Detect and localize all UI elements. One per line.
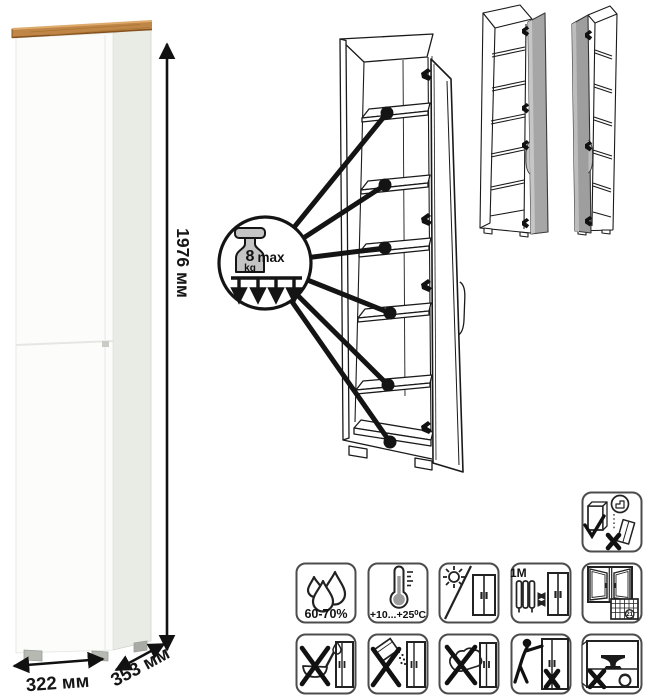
- no-dragging-icon: [510, 633, 572, 695]
- height-label: 1976 мм: [173, 228, 193, 298]
- no-liquid-cleaners-icon: [295, 633, 357, 695]
- calendar-icon: 21: [611, 599, 638, 619]
- humidity-icon: 60-70%: [295, 562, 357, 624]
- no-abrasive-powders-icon: [367, 633, 429, 695]
- anchor-to-wall-icon: [581, 491, 643, 553]
- open-cabinet-schematic: 8 kg max: [215, 10, 480, 502]
- ventilation-icon: 21: [581, 562, 643, 624]
- radiator-icon: [517, 581, 535, 613]
- no-direct-sunlight-icon: [438, 562, 500, 624]
- cabinet-side-panel: [113, 27, 151, 650]
- variant-door-left: [572, 6, 617, 235]
- variant-door-right: [480, 5, 548, 237]
- no-wet-sponge-icon: [438, 633, 500, 695]
- width-label: 322 мм: [25, 670, 90, 695]
- shelf-load-unit: kg: [244, 263, 256, 274]
- temperature-label: +10...+25⁰C: [370, 609, 427, 621]
- shelf-load-callout: 8 kg max: [219, 217, 311, 309]
- door-handle-recess: [102, 341, 109, 347]
- humidity-label: 60-70%: [304, 607, 347, 621]
- door-variants-drawing: [472, 2, 648, 238]
- calendar-day: 21: [626, 612, 633, 618]
- open-window-icon: [588, 567, 632, 602]
- temperature-icon: +10...+25⁰C: [367, 562, 429, 624]
- kettlebell-icon: [620, 674, 631, 686]
- cabinet-photo: 1976 мм 322 мм 353 мм: [0, 0, 200, 700]
- min-heat-distance-icon: ≥1М: [510, 562, 572, 624]
- open-door-drawing: [431, 59, 465, 472]
- shelf-callout-dots: [379, 107, 397, 449]
- product-sheet: 1976 мм 322 мм 353 мм: [0, 0, 648, 700]
- no-overloading-icon: [581, 633, 643, 695]
- shelf-load-qualifier: max: [257, 250, 285, 265]
- distance-label: ≥1М: [510, 566, 527, 580]
